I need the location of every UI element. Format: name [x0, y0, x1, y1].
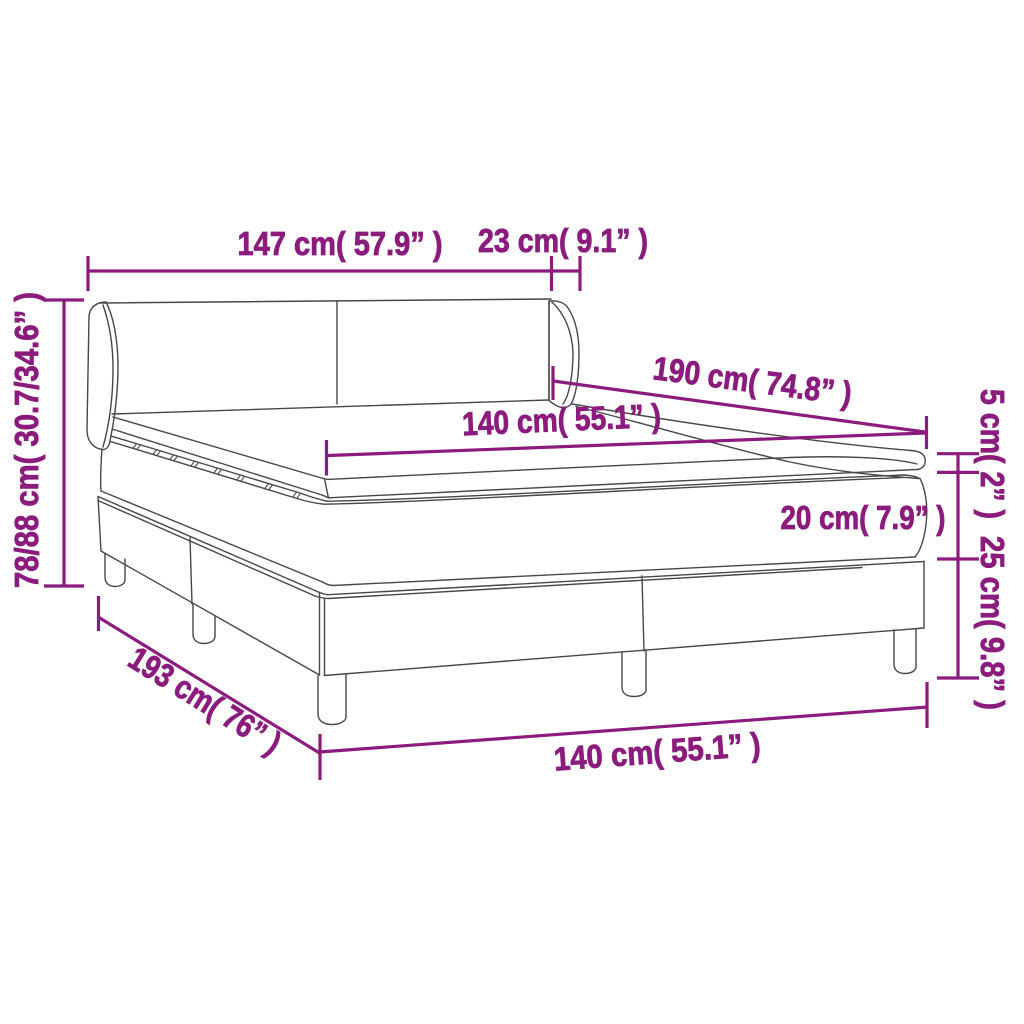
svg-text:78/88 cm( 30.7/34.6” ): 78/88 cm( 30.7/34.6” ) [8, 292, 45, 588]
svg-text:25 cm( 9.8” ): 25 cm( 9.8” ) [974, 536, 1011, 710]
svg-text:23 cm( 9.1” ): 23 cm( 9.1” ) [478, 222, 648, 259]
svg-text:20 cm( 7.9” ): 20 cm( 7.9” ) [781, 499, 946, 536]
svg-text:5 cm( 2” ): 5 cm( 2” ) [974, 389, 1011, 519]
svg-text:147 cm( 57.9” ): 147 cm( 57.9” ) [238, 225, 443, 262]
